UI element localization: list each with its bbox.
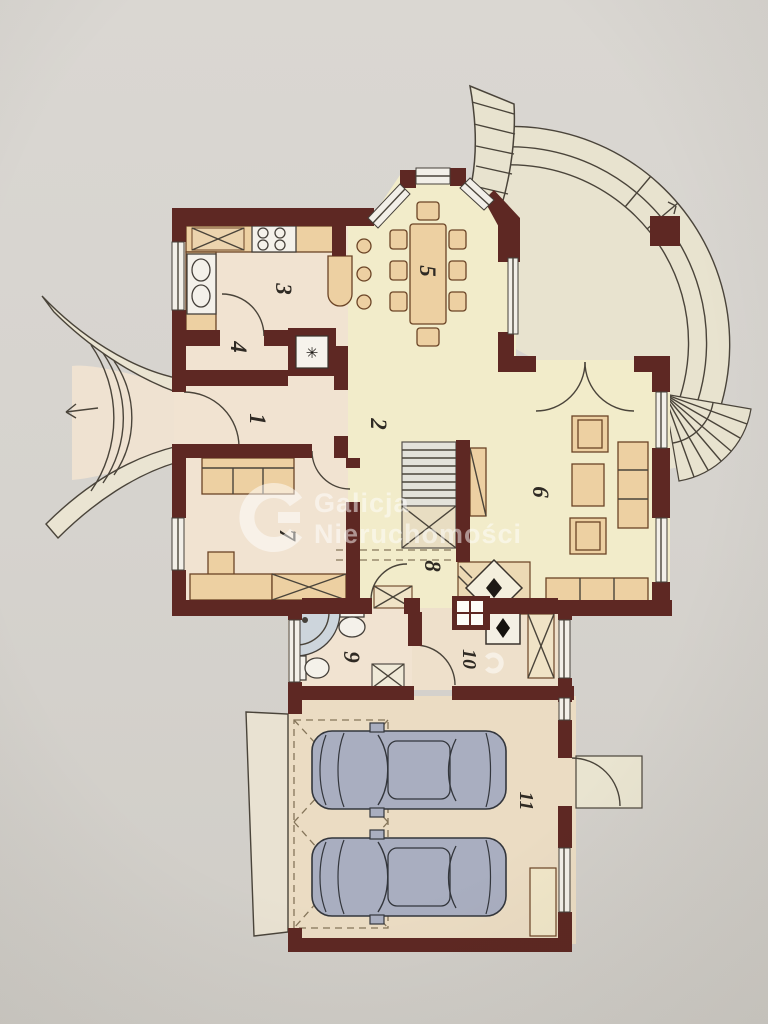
floor-plan-photo: ✳ 1 2 3 4 5 6 7 8 9 10 11 Galicja Nieruc…: [0, 0, 768, 1024]
photo-vignette: [0, 0, 768, 1024]
